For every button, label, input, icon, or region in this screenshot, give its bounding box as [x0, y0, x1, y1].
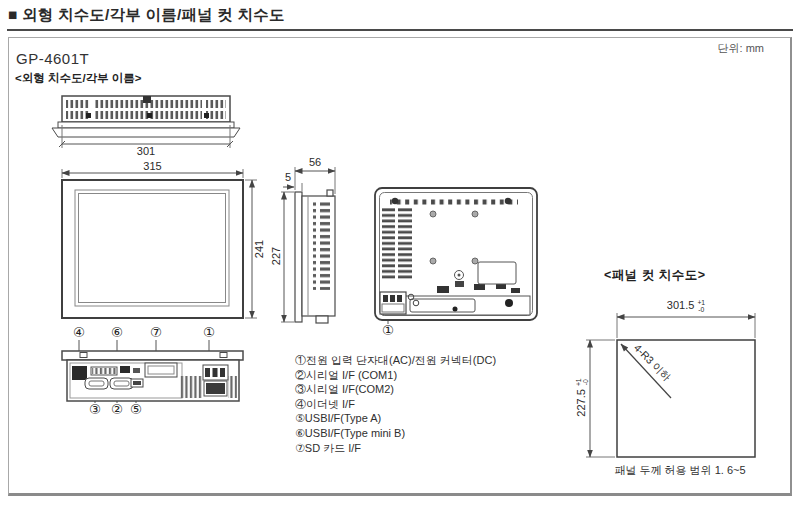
sd-card-slot [145, 363, 177, 377]
unit-label: 단위: mm [718, 41, 764, 56]
panelcut-width-dim: 301.5 +1 -0 [617, 299, 755, 313]
serial-com1-port [110, 378, 133, 389]
callout-sd-card: ⑦ [150, 326, 162, 340]
legend-item-ethernet: ④이더넷 I/F [295, 397, 496, 412]
front-view-drawing [62, 169, 257, 318]
callout-power: ① [203, 326, 215, 340]
side-view-drawing [281, 167, 335, 323]
callout-serial-com1: ② [111, 403, 123, 417]
legend-item-serial-com2: ③시리얼 I/F(COM2) [295, 382, 496, 397]
ethernet-port [72, 366, 87, 380]
panelcut-width-value: 301.5 [667, 299, 695, 311]
dim-front-width: 315 [62, 160, 243, 172]
dim-front-height: 241 [253, 224, 265, 274]
model-label: GP-4601T [16, 50, 89, 67]
panelcut-section-title: <패널 컷 치수도> [604, 267, 706, 284]
panelcut-width-tolerance: +1 -0 [697, 299, 705, 313]
dim-top-width: 301 [62, 145, 230, 157]
callout-serial-com2: ③ [89, 403, 101, 417]
rear-view-drawing [375, 188, 537, 320]
callout-usb-a: ⑤ [130, 403, 142, 417]
panelcut-height-dim: 227.5 +1 -0 [575, 365, 588, 431]
serial-com2-port [85, 378, 108, 389]
legend-item-usb-a: ⑤USBI/F(Type A) [295, 411, 496, 426]
callout-usb-mini-b: ⑥ [111, 326, 123, 340]
dim-depth: 56 [295, 156, 335, 168]
callout-ethernet: ④ [73, 326, 85, 340]
manual-page: ■ 외형 치수도/각부 이름/패널 컷 치수도 [0, 0, 800, 505]
callout-rear-power: ① [382, 324, 394, 338]
dim-bezel-thickness: 5 [278, 171, 298, 183]
interface-legend: ①전원 입력 단자대(AC)/전원 커넥터(DC) ②시리얼 I/F (COM1… [295, 353, 496, 455]
outline-section-title: <외형 치수도/각부 이름> [15, 71, 142, 86]
panelcut-thickness-note: 패널 두께 허용 범위 1. 6~5 [598, 463, 762, 478]
top-view-drawing [52, 96, 240, 148]
legend-item-power: ①전원 입력 단자대(AC)/전원 커넥터(DC) [295, 353, 496, 368]
legend-item-sd-card: ⑦SD 카드 I/F [295, 441, 496, 456]
battery-cover [478, 262, 516, 284]
front-bezel [62, 180, 243, 318]
dim-side-height: 227 [270, 231, 282, 281]
panelcut-height-tolerance: +1 -0 [575, 378, 589, 386]
legend-item-usb-mini-b: ⑥USBI/F(Type mini B) [295, 426, 496, 441]
bottom-view-drawing [62, 351, 243, 401]
legend-item-serial-com1: ②시리얼 I/F (COM1) [295, 368, 496, 383]
panelcut-height-value: 227.5 [575, 389, 587, 417]
rear-vent-slots [382, 208, 420, 280]
usb-mini-b-port [120, 366, 130, 373]
